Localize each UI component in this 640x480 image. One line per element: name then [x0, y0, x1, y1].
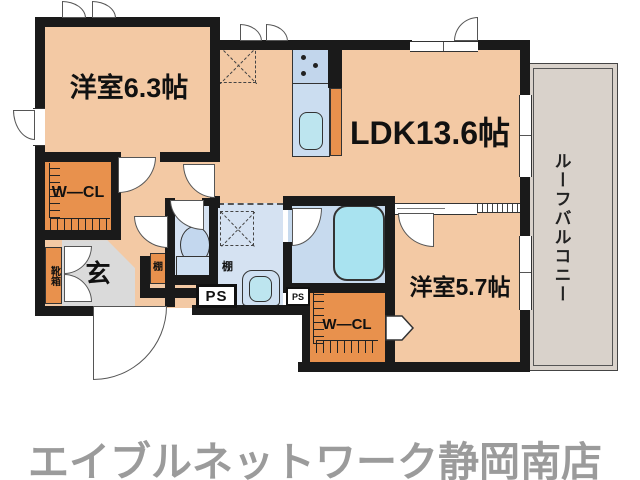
ps-label: PS: [205, 288, 227, 305]
bedroom1-label: 洋室6.3帖: [44, 70, 214, 106]
ldk-label: LDK13.6帖: [330, 112, 530, 154]
wall: [283, 196, 395, 206]
window-mullion: [443, 42, 444, 51]
wall: [146, 288, 196, 298]
wall: [520, 176, 530, 240]
wall: [385, 196, 395, 370]
cross-mark-icon: [221, 212, 255, 247]
door-swing-arc: [454, 17, 478, 41]
wall: [298, 362, 530, 372]
wcl2-hanger-ticks: [316, 340, 378, 353]
wcl2-opening-arrow: [385, 315, 415, 341]
window-swing-arc: [240, 24, 262, 41]
window-swing-arc: [13, 110, 35, 140]
wall: [209, 206, 218, 283]
ps-box-large: PS: [196, 284, 237, 308]
wcl1-label: W—CL: [44, 182, 112, 204]
ps-box-small: PS: [286, 287, 310, 306]
entrance-label: 玄: [84, 260, 112, 288]
wall: [202, 198, 218, 206]
store-name-logo: エイブルネットワーク静岡南店: [28, 428, 618, 480]
wall: [218, 40, 412, 50]
ps-label: PS: [292, 292, 304, 302]
stove-burner-icon: [313, 63, 318, 68]
wall: [35, 152, 120, 162]
wall: [35, 306, 93, 316]
window-swing-arc: [92, 1, 116, 18]
wall: [35, 17, 220, 27]
wall: [283, 242, 292, 293]
kitchen-stove: [292, 44, 330, 84]
floorplan-canvas: PS PS 洋室6.3帖 LDK13.6帖 洋室5.7帖 W—CL W—CL 玄…: [0, 0, 640, 480]
wcl2-label: W—CL: [310, 314, 384, 334]
wall: [35, 230, 121, 240]
entrance-door-swing: [93, 306, 167, 380]
stove-burner-icon: [301, 71, 306, 76]
toilet-tank: [176, 256, 212, 276]
washroom-open-boundary: [218, 203, 283, 205]
wall: [328, 40, 342, 88]
stove-burner-icon: [301, 55, 306, 60]
closet-hatch-strip: [477, 203, 520, 213]
wash-basin-bowl: [249, 276, 272, 302]
window-swing-arc: [62, 1, 86, 18]
washroom-shelf-label: 棚: [219, 259, 236, 275]
sliding-panel-line: [397, 208, 445, 209]
washing-machine-space: [220, 211, 254, 246]
kitchen-sink: [299, 112, 323, 150]
refrigerator-space: [219, 46, 256, 83]
bedroom2-label: 洋室5.7帖: [396, 272, 524, 302]
roof-balcony-label: ルーフバルコニー: [548, 140, 574, 315]
bathtub: [333, 205, 385, 281]
window-swing-arc: [266, 24, 288, 41]
wall: [283, 196, 292, 210]
ldk-top-window: [410, 41, 478, 52]
wall: [520, 40, 530, 97]
wall: [35, 240, 45, 316]
shoe-cabinet-label: 靴箱: [46, 258, 61, 294]
hall-shelf-label: 棚: [151, 260, 165, 276]
cross-mark-icon: [220, 47, 257, 84]
